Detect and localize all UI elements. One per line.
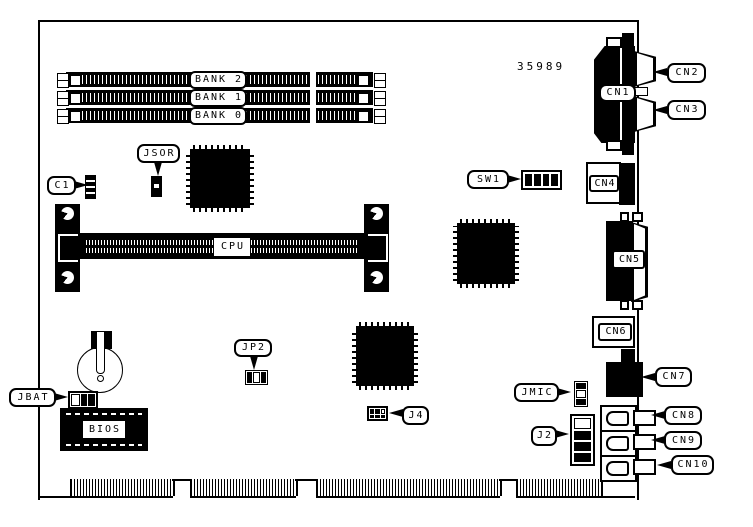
board-bottom-edge bbox=[190, 496, 296, 498]
mounting-hole bbox=[370, 207, 383, 220]
chip-body bbox=[356, 326, 414, 386]
cn5-tab bbox=[632, 212, 643, 222]
j4-callout bbox=[389, 409, 403, 417]
mounting-hole bbox=[61, 207, 74, 220]
header-pin bbox=[576, 399, 586, 405]
cn7-label: CN7 bbox=[655, 367, 692, 387]
edge-connector-notch bbox=[295, 479, 317, 481]
mounting-hole bbox=[370, 271, 383, 284]
cn9-label: CN9 bbox=[664, 431, 702, 450]
simm-latch bbox=[358, 93, 369, 104]
jbat-label: JBAT bbox=[9, 388, 56, 407]
simm-notch bbox=[310, 108, 316, 123]
jack-barrel bbox=[606, 411, 629, 426]
cn1-bracket-bottom bbox=[606, 140, 622, 151]
cn5-label: CN5 bbox=[612, 250, 645, 269]
jack-barrel bbox=[606, 436, 629, 451]
simm-latch bbox=[70, 111, 81, 122]
jp2-label: JP2 bbox=[234, 339, 272, 357]
battery-clip-tip bbox=[97, 375, 104, 382]
sw1-callout bbox=[507, 175, 521, 183]
simm-contact bbox=[374, 116, 386, 124]
jmic-label: JMIC bbox=[514, 383, 559, 402]
cpu-retention-bracket-right bbox=[368, 234, 388, 262]
port-face bbox=[637, 98, 653, 130]
header-pin bbox=[381, 415, 385, 418]
simm-latch bbox=[70, 93, 81, 104]
edge-connector-notch bbox=[172, 479, 191, 481]
simm-notch bbox=[310, 72, 316, 87]
cn3-callout bbox=[653, 106, 667, 114]
cn1-tab-top bbox=[622, 33, 634, 47]
jp2-callout bbox=[250, 356, 258, 370]
jbat-jumper bbox=[68, 391, 98, 409]
cn6-label: CN6 bbox=[598, 323, 632, 341]
jsor-jumper bbox=[151, 176, 162, 197]
j2-callout bbox=[555, 430, 569, 438]
bios-dashed-line bbox=[66, 413, 142, 415]
j2-header bbox=[570, 414, 595, 466]
jack-barrel bbox=[606, 461, 629, 476]
cn1-label: CN1 bbox=[599, 84, 636, 102]
bios-dashed-line bbox=[66, 444, 142, 446]
simm-latch bbox=[358, 111, 369, 122]
cn10-stem bbox=[633, 459, 656, 475]
dip-switch-pole bbox=[551, 174, 558, 186]
edge-connector-segment-1 bbox=[70, 479, 175, 496]
dip-switch-pole bbox=[525, 174, 532, 186]
jsor-label: JSOR bbox=[137, 144, 180, 163]
simm-latch bbox=[358, 75, 369, 86]
header-pin-open bbox=[253, 372, 260, 383]
port-face bbox=[637, 53, 653, 85]
battery-clip-arm bbox=[96, 331, 105, 374]
board-bottom-edge bbox=[316, 496, 500, 498]
cn3-label: CN3 bbox=[667, 100, 706, 120]
j4-header bbox=[367, 406, 388, 421]
simm-contact bbox=[374, 98, 386, 106]
header-pin bbox=[247, 372, 252, 383]
simm-notch bbox=[310, 90, 316, 105]
header-pin bbox=[375, 409, 379, 414]
cn3-port bbox=[634, 96, 656, 132]
header-pin bbox=[574, 442, 591, 451]
jmic-callout bbox=[557, 388, 571, 396]
cn7-callout bbox=[641, 373, 655, 381]
c1-label: C1 bbox=[47, 176, 76, 195]
square-chip-middle-right bbox=[453, 219, 519, 288]
cn2-label: CN2 bbox=[667, 63, 706, 83]
header-pin bbox=[370, 409, 374, 414]
jbat-callout bbox=[54, 393, 68, 401]
motherboard-diagram: BANK 2 BANK 1 BANK 0 JSOR C1 bbox=[0, 0, 753, 527]
mounting-hole bbox=[61, 271, 74, 284]
bank-2-label: BANK 2 bbox=[189, 71, 247, 89]
cn5-tab bbox=[620, 212, 629, 222]
cn10-jack bbox=[600, 455, 637, 482]
bank-1-label: BANK 1 bbox=[189, 89, 247, 107]
part-number: 35989 bbox=[517, 60, 565, 73]
cn8-label: CN8 bbox=[664, 406, 702, 425]
bank-0-label: BANK 0 bbox=[189, 107, 247, 125]
cn8-jack bbox=[600, 405, 637, 432]
cn5-tab bbox=[620, 300, 629, 310]
dip-switch-pole bbox=[534, 174, 541, 186]
chip-body bbox=[457, 223, 515, 284]
cpu-retention-bracket-left bbox=[58, 234, 78, 262]
cn9-jack bbox=[600, 430, 637, 457]
header-pin bbox=[261, 372, 266, 383]
header-pin bbox=[370, 415, 374, 418]
header-pin bbox=[574, 453, 591, 462]
cn2-callout bbox=[653, 68, 667, 76]
edge-connector-segment-4 bbox=[516, 479, 603, 496]
header-pin-open bbox=[71, 394, 80, 406]
cn7-connector-body bbox=[606, 362, 643, 397]
jp2-jumper bbox=[245, 370, 268, 385]
square-chip-bottom-center bbox=[352, 322, 418, 390]
dip-switch-pole bbox=[543, 174, 550, 186]
cn4-connector-body bbox=[619, 163, 635, 205]
jumper-gap bbox=[154, 184, 159, 188]
header-pin bbox=[576, 383, 586, 389]
header-pin bbox=[375, 415, 379, 418]
header-pin-open bbox=[381, 409, 385, 414]
simm-contact bbox=[57, 116, 69, 124]
sw1-dip-switch bbox=[521, 170, 562, 190]
bios-label: BIOS bbox=[83, 421, 125, 438]
cn1-tab-bottom bbox=[622, 141, 634, 155]
simm-contact bbox=[374, 80, 386, 88]
header-pin bbox=[81, 394, 88, 406]
jsor-callout bbox=[154, 162, 162, 176]
header-pin bbox=[88, 394, 95, 406]
edge-connector-segment-3 bbox=[316, 479, 502, 496]
cn10-label: CN10 bbox=[671, 455, 714, 475]
cn4-label: CN4 bbox=[589, 175, 619, 192]
cn7-stem bbox=[621, 349, 635, 363]
j2-label: J2 bbox=[531, 426, 557, 446]
cn8-callout bbox=[651, 411, 665, 419]
cn10-callout bbox=[657, 461, 671, 469]
header-pin bbox=[574, 431, 591, 440]
cpu-label: CPU bbox=[214, 238, 250, 256]
simm-latch bbox=[70, 75, 81, 86]
jmic-header bbox=[574, 381, 588, 407]
square-chip-top bbox=[186, 145, 254, 212]
header-pin-open bbox=[576, 390, 586, 398]
edge-connector-notch bbox=[499, 479, 517, 481]
simm-contact bbox=[57, 80, 69, 88]
sw1-label: SW1 bbox=[467, 170, 509, 189]
j4-label: J4 bbox=[402, 406, 429, 425]
cn1-bracket-top bbox=[606, 37, 622, 48]
board-bottom-edge bbox=[38, 496, 173, 498]
edge-connector-segment-2 bbox=[190, 479, 298, 496]
simm-contact bbox=[57, 98, 69, 106]
chip-body bbox=[190, 149, 250, 208]
header-pin-open bbox=[574, 418, 591, 429]
c1-callout bbox=[74, 181, 88, 189]
board-bottom-edge bbox=[516, 496, 635, 498]
cn2-cn3-divider-tab bbox=[634, 87, 648, 96]
cn9-callout bbox=[651, 436, 665, 444]
